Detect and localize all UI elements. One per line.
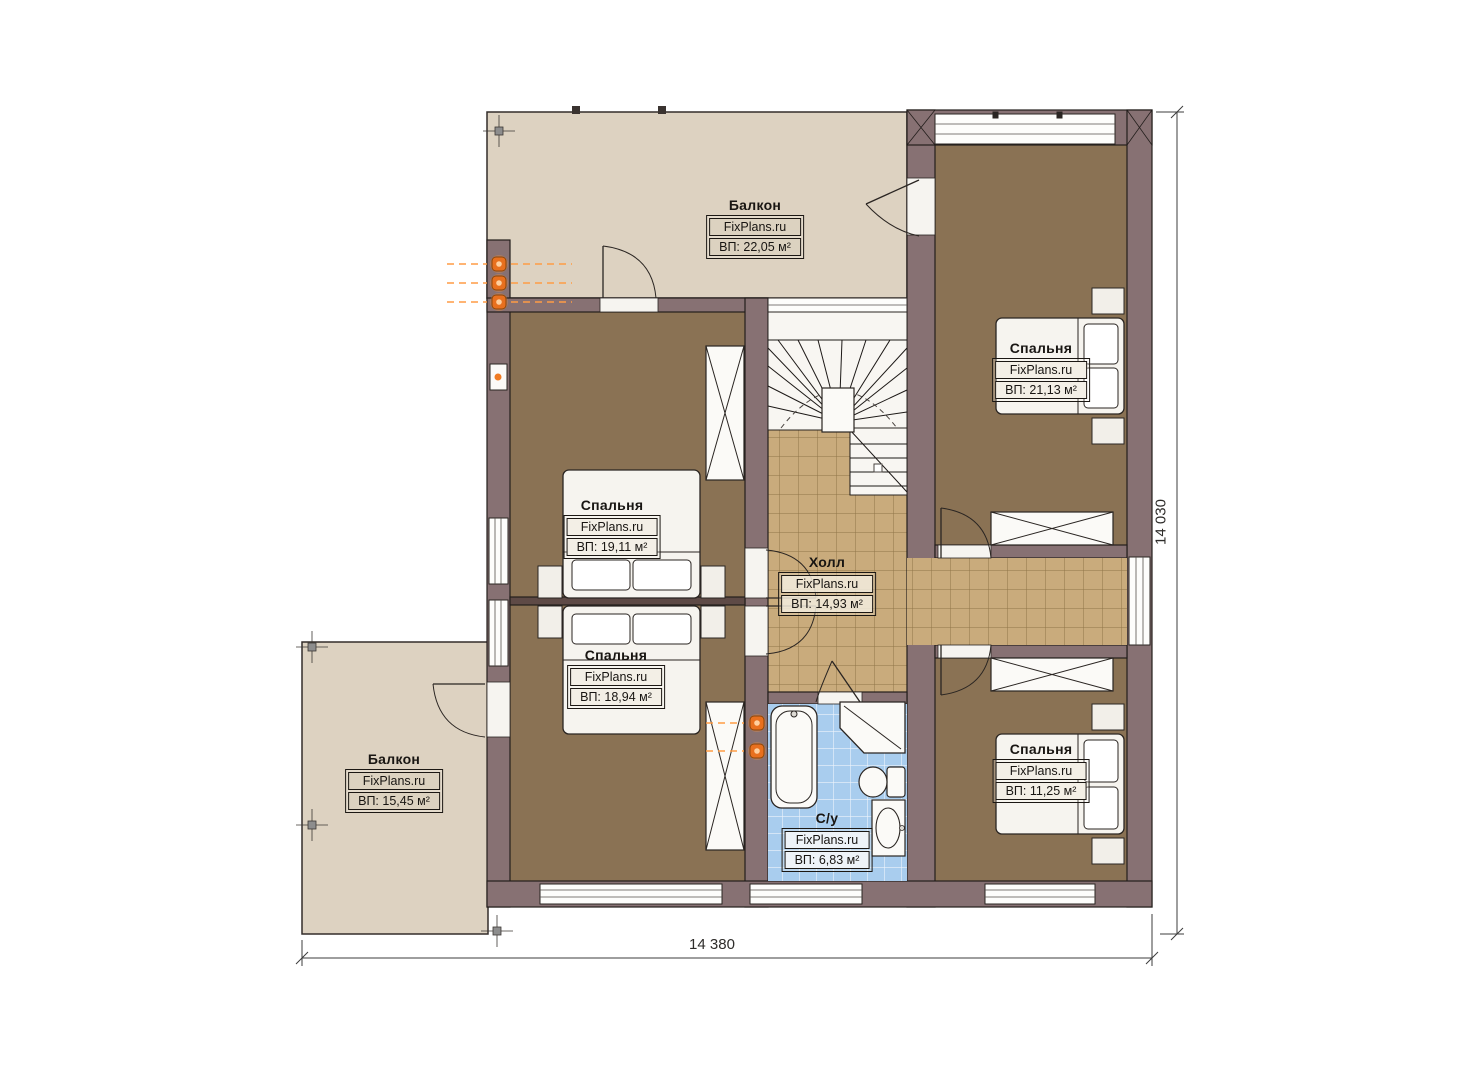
area-label: ВП: 21,13 м² [995,381,1087,399]
wardrobe [706,702,744,850]
area-label: ВП: 22,05 м² [709,238,801,256]
dimension-width-label: 14 380 [689,936,735,953]
room-label-balcony-top: Балкон FixPlans.ru ВП: 22,05 м² [706,197,804,259]
dimension-height-label: 14 030 [1153,499,1170,545]
room-info-box: FixPlans.ru ВП: 11,25 м² [993,759,1090,803]
brand-label: FixPlans.ru [785,831,870,849]
area-label: ВП: 19,11 м² [567,538,658,556]
brand-label: FixPlans.ru [996,762,1087,780]
wardrobe [991,658,1113,691]
bathtub [771,706,817,808]
area-label: ВП: 18,94 м² [570,688,662,706]
area-label: ВП: 6,83 м² [785,851,870,869]
floor-plan: Балкон FixPlans.ru ВП: 22,05 м² Спальня … [0,0,1473,1080]
room-label-bedroom-left-lower: Спальня FixPlans.ru ВП: 18,94 м² [567,647,665,709]
room-name: Холл [778,554,876,570]
room-label-bedroom-top-right: Спальня FixPlans.ru ВП: 21,13 м² [992,340,1090,402]
toilet [859,767,905,797]
room-name: Балкон [706,197,804,213]
wardrobe [706,346,744,480]
room-name: Балкон [345,751,443,767]
sink [872,800,905,856]
brand-label: FixPlans.ru [709,218,801,236]
electrical-box [490,364,507,390]
room-info-box: FixPlans.ru ВП: 21,13 м² [992,358,1090,402]
floor-plan-drawing [0,0,1473,1080]
balcony-top-floor [487,106,907,298]
area-label: ВП: 15,45 м² [348,792,440,810]
corridor-floor [907,558,1127,645]
room-name: Спальня [564,497,661,513]
room-name: Спальня [992,340,1090,356]
room-label-bathroom: С/у FixPlans.ru ВП: 6,83 м² [782,810,873,872]
brand-label: FixPlans.ru [781,575,873,593]
room-info-box: FixPlans.ru ВП: 14,93 м² [778,572,876,616]
room-info-box: FixPlans.ru ВП: 22,05 м² [706,215,804,259]
wardrobe [991,512,1113,545]
area-label: ВП: 11,25 м² [996,782,1087,800]
room-label-bedroom-bottom-right: Спальня FixPlans.ru ВП: 11,25 м² [993,741,1090,803]
room-name: С/у [782,810,873,826]
room-info-box: FixPlans.ru ВП: 6,83 м² [782,828,873,872]
room-name: Спальня [567,647,665,663]
room-info-box: FixPlans.ru ВП: 15,45 м² [345,769,443,813]
room-label-balcony-bottom-left: Балкон FixPlans.ru ВП: 15,45 м² [345,751,443,813]
room-info-box: FixPlans.ru ВП: 19,11 м² [564,515,661,559]
brand-label: FixPlans.ru [995,361,1087,379]
room-name: Спальня [993,741,1090,757]
brand-label: FixPlans.ru [567,518,658,536]
room-label-bedroom-left-upper: Спальня FixPlans.ru ВП: 19,11 м² [564,497,661,559]
room-info-box: FixPlans.ru ВП: 18,94 м² [567,665,665,709]
room-label-hall: Холл FixPlans.ru ВП: 14,93 м² [778,554,876,616]
area-label: ВП: 14,93 м² [781,595,873,613]
brand-label: FixPlans.ru [570,668,662,686]
brand-label: FixPlans.ru [348,772,440,790]
